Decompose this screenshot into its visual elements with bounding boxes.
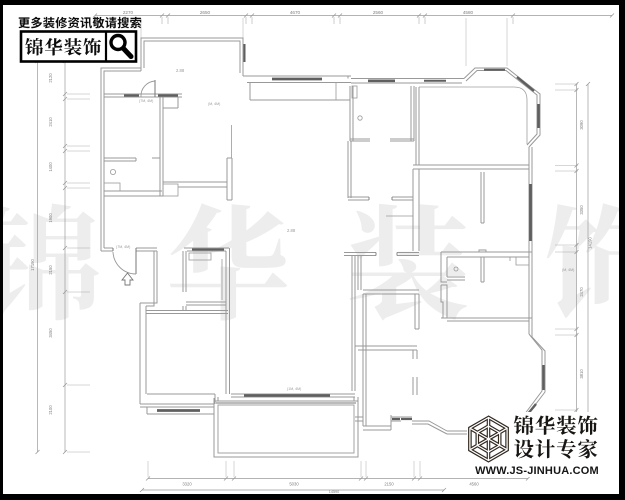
svg-text:(7M, 4M): (7M, 4M) <box>139 99 153 103</box>
svg-text:17190: 17190 <box>30 259 35 271</box>
svg-text:2100: 2100 <box>48 405 53 415</box>
svg-text:2650: 2650 <box>200 10 211 15</box>
svg-text:1400: 1400 <box>48 162 53 172</box>
svg-text:1900: 1900 <box>48 213 53 223</box>
svg-text:14190: 14190 <box>588 237 593 249</box>
svg-text:5030: 5030 <box>289 482 299 487</box>
svg-text:4560: 4560 <box>469 482 479 487</box>
svg-text:2470: 2470 <box>579 287 584 297</box>
svg-text:3320: 3320 <box>182 482 192 487</box>
svg-text:3810: 3810 <box>579 369 584 379</box>
svg-text:3090: 3090 <box>579 120 584 130</box>
svg-text:(M, 4M): (M, 4M) <box>208 102 220 106</box>
svg-text:2270: 2270 <box>123 10 134 15</box>
svg-text:4580: 4580 <box>463 10 474 15</box>
svg-text:3350: 3350 <box>579 205 584 215</box>
svg-text:4670: 4670 <box>290 10 301 15</box>
svg-text:(7M, 4M): (7M, 4M) <box>116 245 130 249</box>
svg-text:14590: 14590 <box>329 490 340 494</box>
svg-text:2.88: 2.88 <box>176 68 185 73</box>
svg-text:2150: 2150 <box>48 265 53 275</box>
svg-text:WWW.JS-JINHUA.COM: WWW.JS-JINHUA.COM <box>475 465 599 477</box>
svg-text:2.88: 2.88 <box>287 228 296 233</box>
svg-text:(M, 4M): (M, 4M) <box>562 268 574 272</box>
svg-text:(1M, 4M): (1M, 4M) <box>287 387 301 391</box>
svg-text:2410: 2410 <box>48 117 53 127</box>
svg-text:2560: 2560 <box>373 10 384 15</box>
svg-text:2120: 2120 <box>48 73 53 83</box>
svg-text:2150: 2150 <box>384 482 394 487</box>
svg-text:3450: 3450 <box>48 328 53 338</box>
